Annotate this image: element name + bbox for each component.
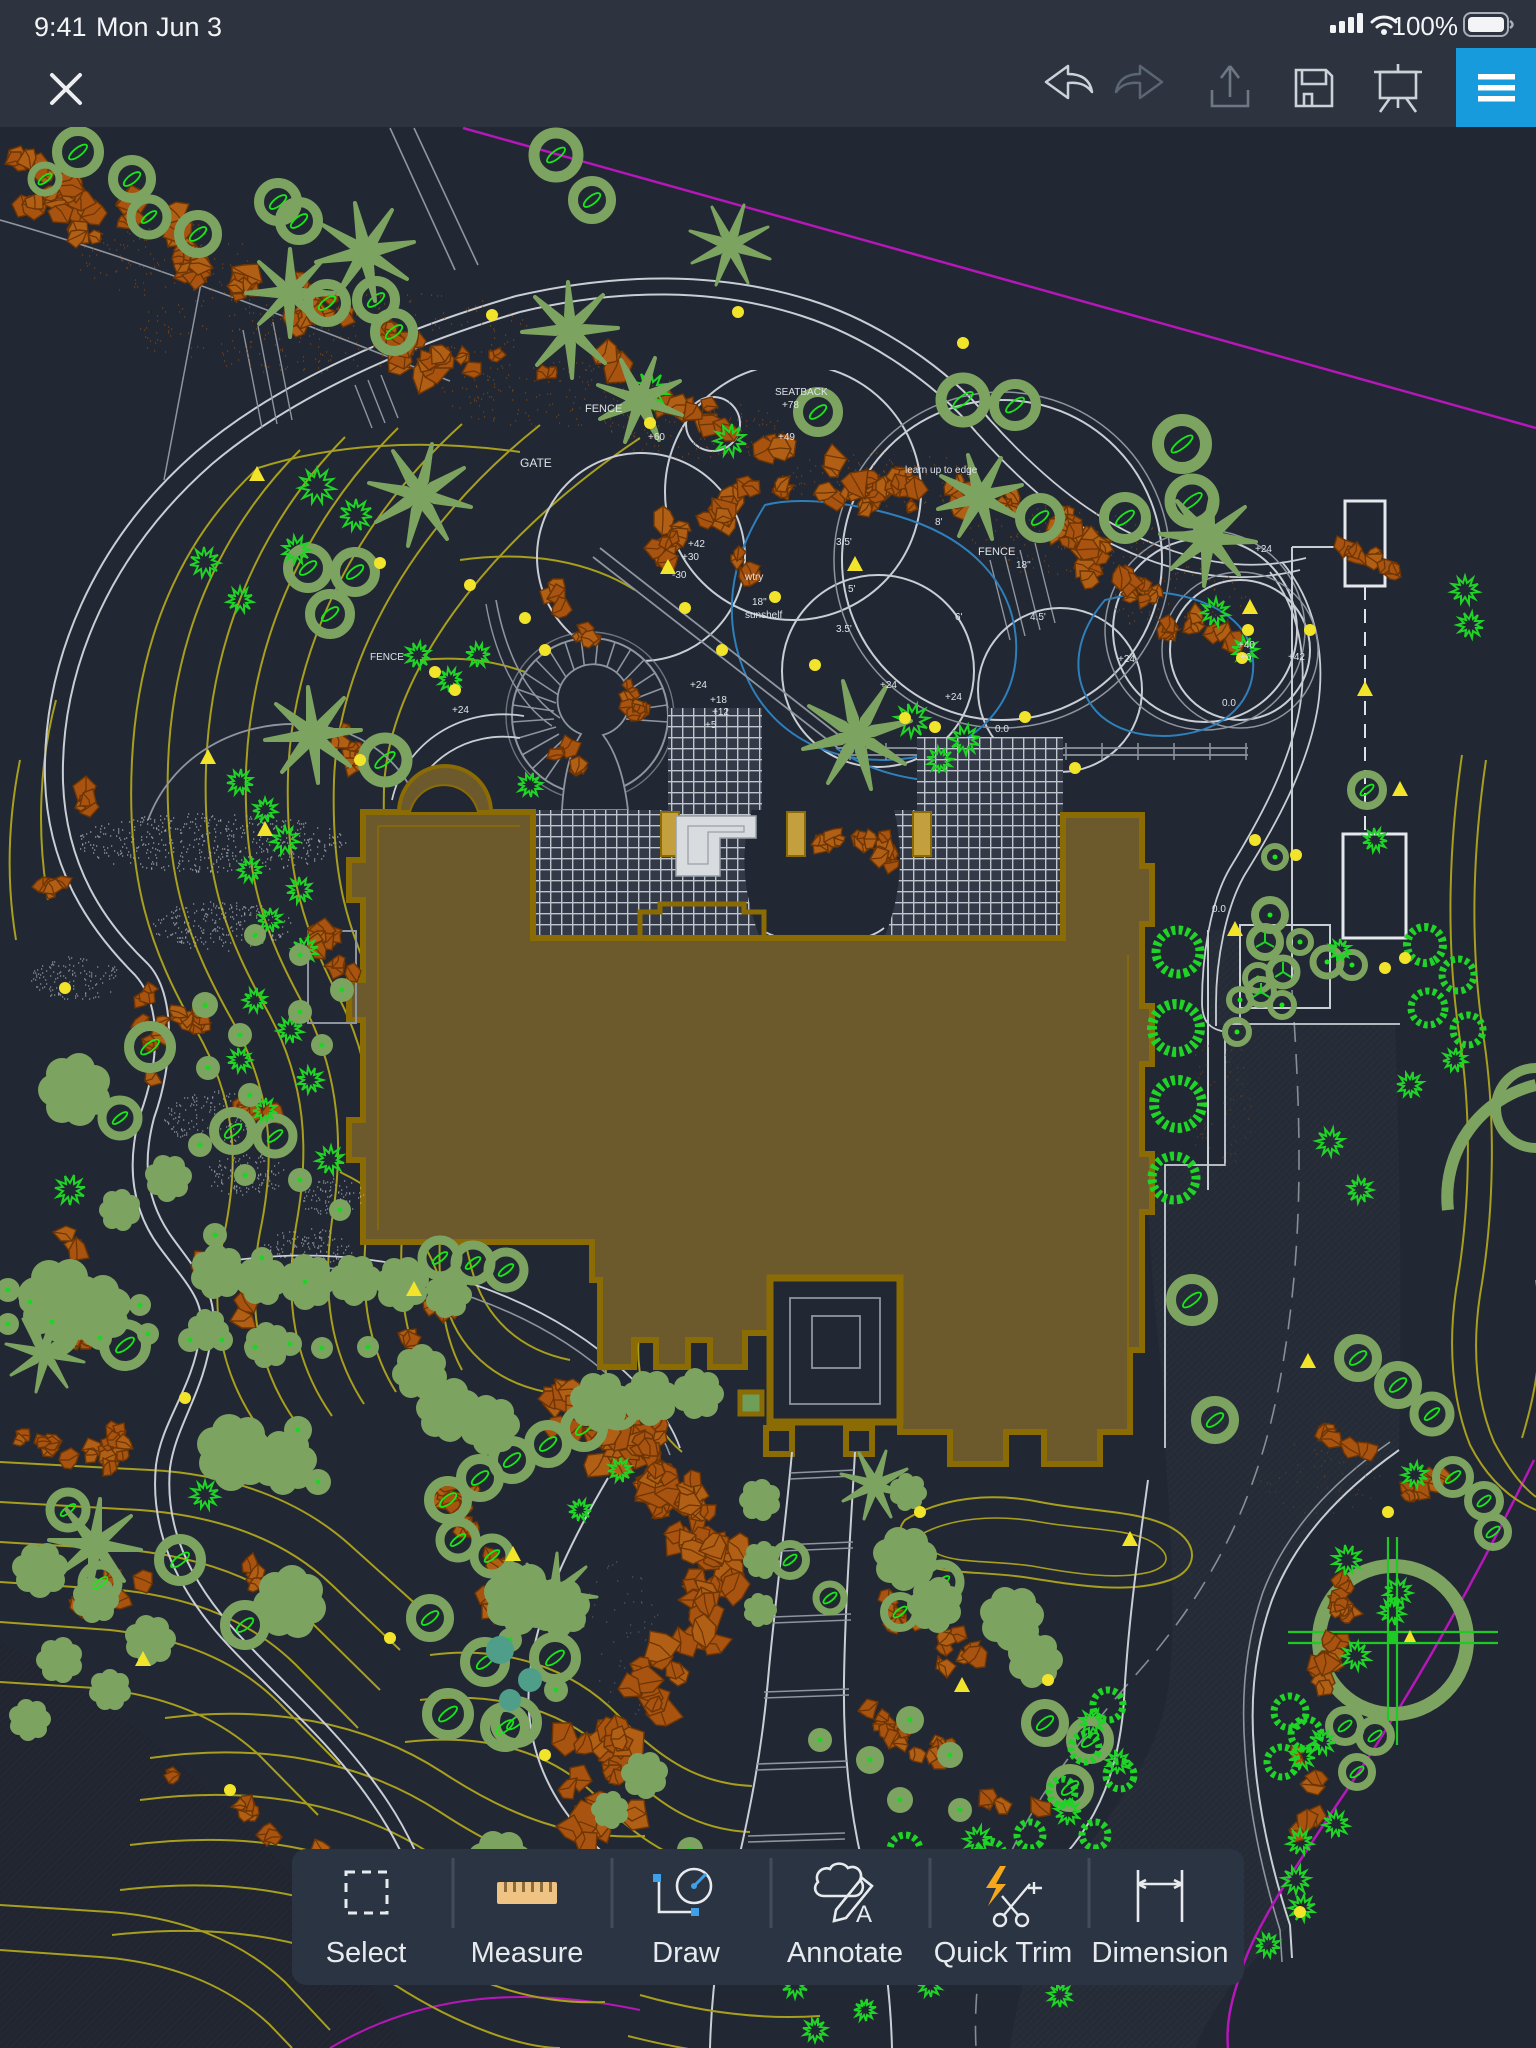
svg-text:SEATBACK: SEATBACK [775,387,828,398]
svg-text:+5: +5 [705,720,717,731]
svg-text:FENCE: FENCE [978,546,1015,558]
svg-text:Draw: Draw [652,1937,721,1969]
svg-text:+60: +60 [648,432,665,443]
svg-text:3.5': 3.5' [836,624,852,635]
svg-text:FENCE: FENCE [585,403,622,415]
svg-text:18": 18" [752,597,767,608]
svg-text:100%: 100% [1392,11,1459,41]
svg-text:+24: +24 [1255,544,1272,555]
svg-text:+24: +24 [690,680,707,691]
svg-text:+78: +78 [782,400,799,411]
svg-text:Select: Select [326,1937,407,1969]
svg-text:6': 6' [955,612,963,623]
svg-text:GATE: GATE [520,456,552,470]
svg-text:+24: +24 [880,680,897,691]
svg-text:9:41: 9:41 [34,12,87,42]
svg-text:0.0: 0.0 [1222,698,1236,709]
svg-text:+6: +6 [1240,652,1252,663]
svg-text:Quick Trim: Quick Trim [934,1937,1073,1969]
svg-text:learn up to edge: learn up to edge [905,465,978,476]
svg-text:A: A [856,1901,872,1928]
svg-text:wtry: wtry [744,572,763,583]
svg-text:0.0: 0.0 [1212,904,1226,915]
svg-text:0.0: 0.0 [995,724,1009,735]
svg-text:Measure: Measure [471,1937,584,1969]
svg-text:+24: +24 [452,705,469,716]
svg-text:sunshelf: sunshelf [745,610,782,621]
svg-text:Dimension: Dimension [1092,1937,1229,1969]
svg-text:+42: +42 [1288,652,1305,663]
svg-text:4.5': 4.5' [1030,612,1046,623]
svg-text:+49: +49 [778,432,795,443]
svg-text:Annotate: Annotate [787,1937,903,1969]
svg-text:+42: +42 [688,539,705,550]
svg-text:+40: +40 [1238,640,1255,651]
svg-text:3.5': 3.5' [836,537,852,548]
svg-text:+18: +18 [710,695,727,706]
svg-text:+12: +12 [712,707,729,718]
svg-text:5': 5' [848,584,856,595]
svg-text:18": 18" [1016,560,1031,571]
svg-text:+24: +24 [1118,654,1135,665]
svg-text:+24: +24 [945,692,962,703]
svg-text:-30: -30 [672,570,687,581]
svg-text:FENCE: FENCE [370,652,404,663]
svg-text:Mon Jun 3: Mon Jun 3 [96,12,222,42]
svg-text:8': 8' [935,517,943,528]
svg-text:+30: +30 [682,552,699,563]
